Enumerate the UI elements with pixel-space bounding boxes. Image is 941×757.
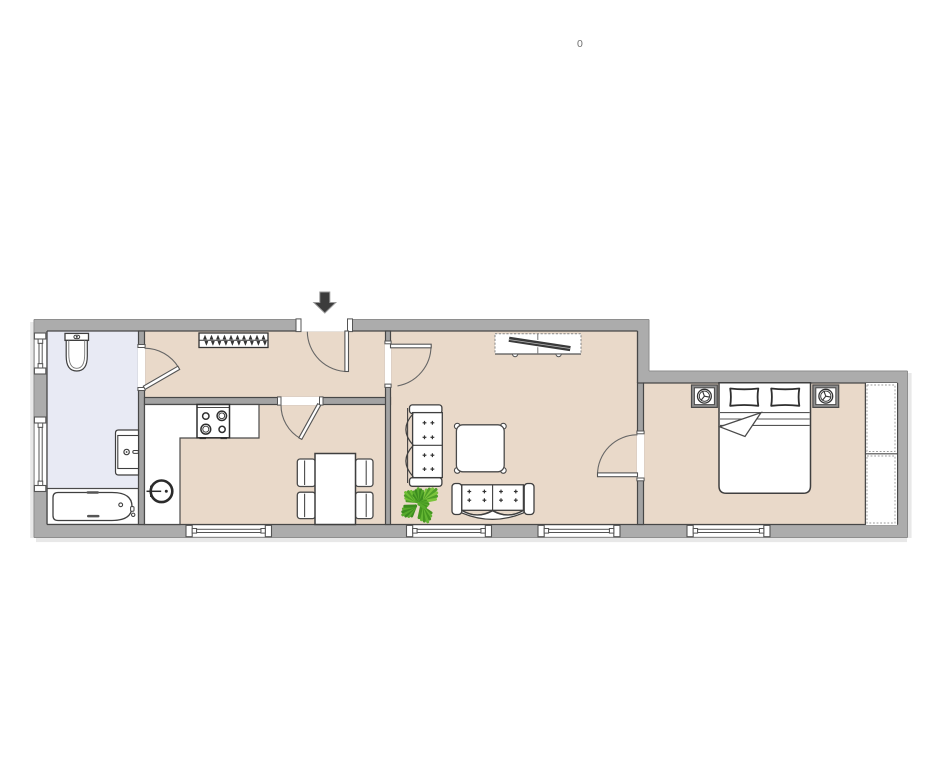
- svg-text:0: 0: [577, 38, 583, 50]
